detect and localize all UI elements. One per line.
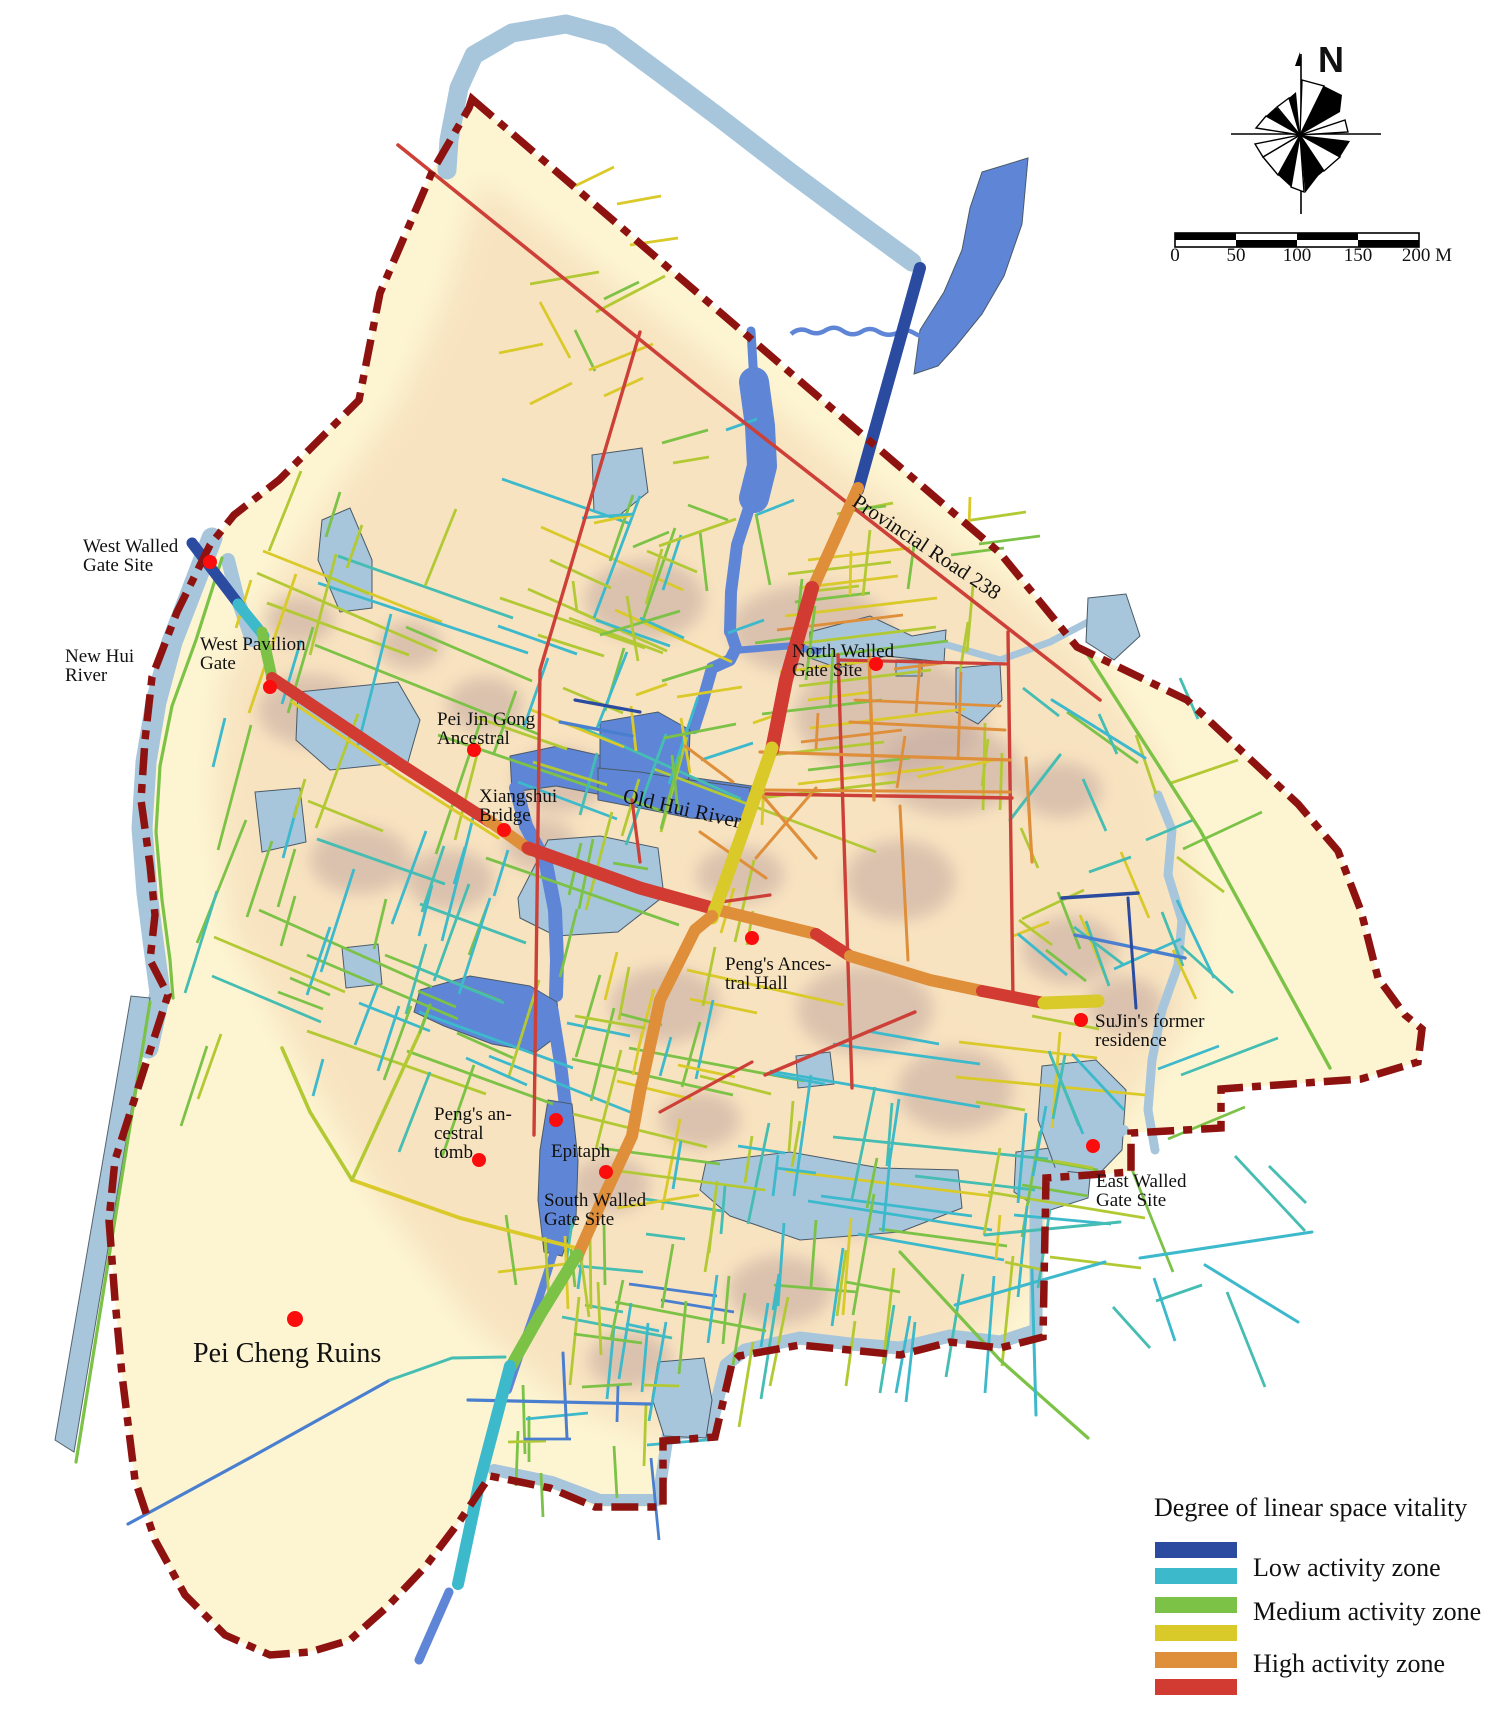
svg-text:Epitaph: Epitaph (551, 1141, 611, 1162)
svg-text:Low activity zone: Low activity zone (1253, 1553, 1441, 1582)
svg-text:Degree of linear space vitalit: Degree of linear space vitality (1154, 1493, 1467, 1522)
svg-text:High activity zone: High activity zone (1253, 1649, 1445, 1678)
svg-text:150: 150 (1344, 245, 1373, 266)
svg-text:Pei Cheng Ruins: Pei Cheng Ruins (193, 1338, 381, 1369)
svg-text:N: N (1318, 39, 1344, 80)
svg-text:0: 0 (1170, 245, 1180, 266)
svg-text:Medium activity zone: Medium activity zone (1253, 1597, 1481, 1626)
svg-text:200 M: 200 M (1402, 245, 1452, 266)
svg-text:50: 50 (1227, 245, 1246, 266)
svg-text:100: 100 (1283, 245, 1312, 266)
